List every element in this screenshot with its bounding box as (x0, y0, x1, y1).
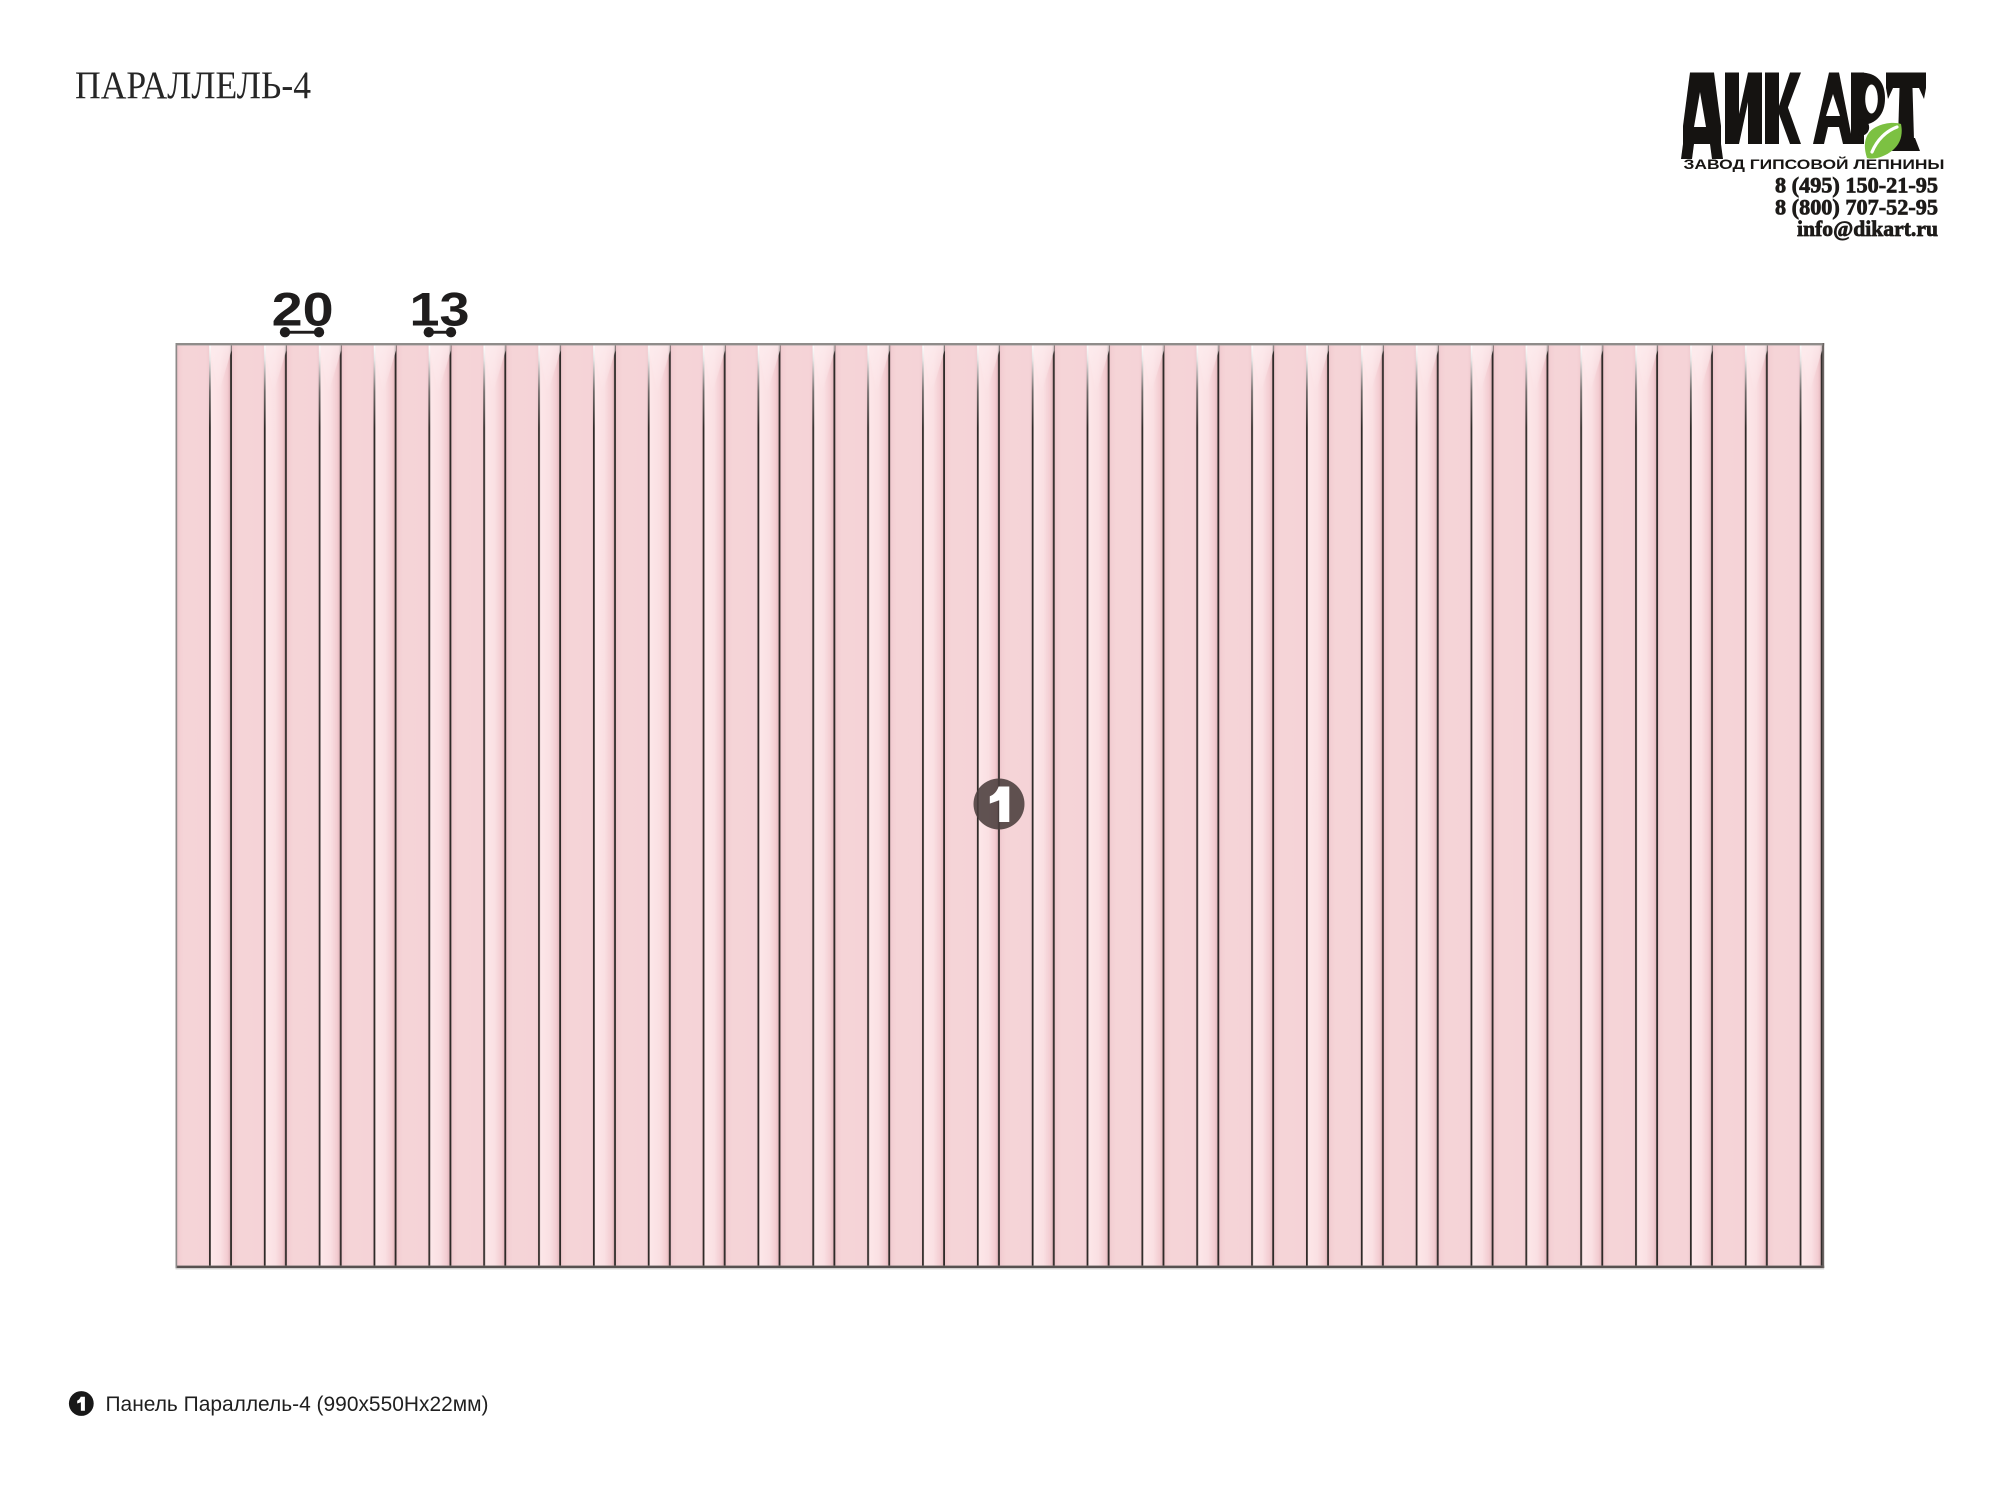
svg-text:20: 20 (272, 284, 334, 337)
svg-text:13: 13 (410, 284, 470, 337)
svg-text:ЗАВОД ГИПСОВОЙ ЛЕПНИНЫ: ЗАВОД ГИПСОВОЙ ЛЕПНИНЫ (1684, 155, 1945, 173)
svg-text:ПАРАЛЛЕЛЬ-4: ПАРАЛЛЕЛЬ-4 (75, 64, 311, 107)
svg-text:Панель Параллель-4 (990х550Нх2: Панель Параллель-4 (990х550Нх22мм) (106, 1392, 489, 1416)
svg-text:info@dikart.ru: info@dikart.ru (1797, 216, 1938, 242)
